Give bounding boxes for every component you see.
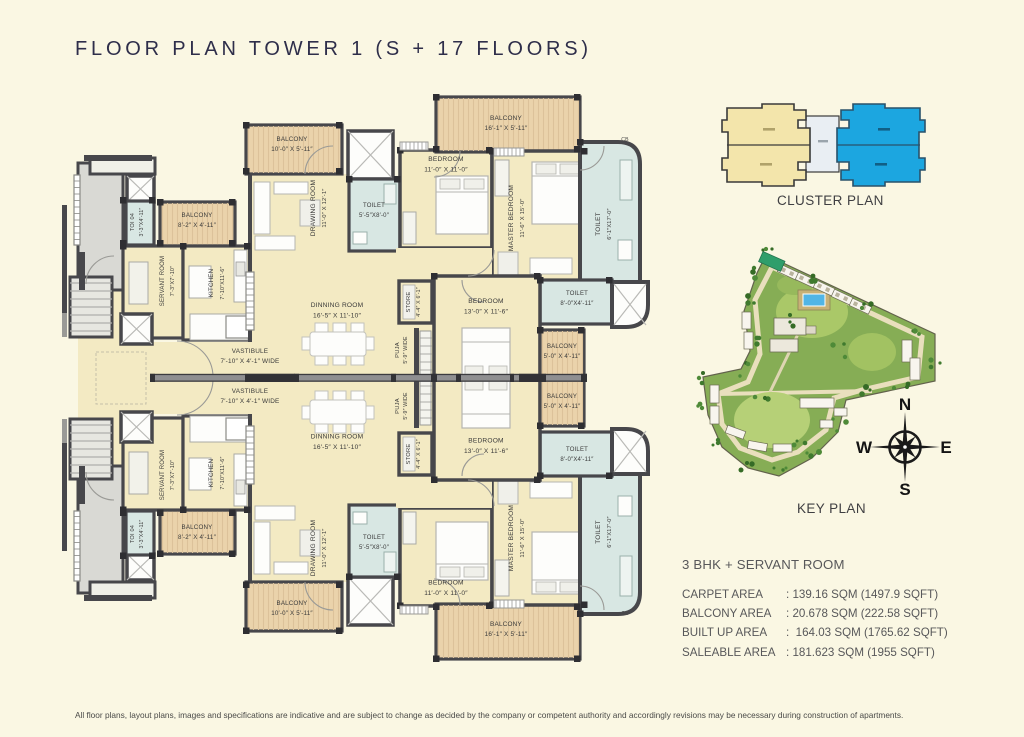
svg-text:BALCONY: BALCONY [182, 212, 213, 219]
svg-text:13′-0″ X 11′-6″: 13′-0″ X 11′-6″ [464, 448, 509, 455]
svg-text:DRAWING ROOM: DRAWING ROOM [310, 520, 317, 576]
svg-text:BEDROOM: BEDROOM [428, 580, 463, 587]
svg-text:TOI 04: TOI 04 [130, 213, 136, 231]
svg-text:E: E [940, 438, 951, 457]
svg-text:6′-1″X17′-0″: 6′-1″X17′-0″ [607, 208, 613, 239]
svg-text:BEDROOM: BEDROOM [428, 156, 463, 163]
svg-text:TOILET: TOILET [566, 291, 588, 297]
svg-text:7′-10″X11′-6″: 7′-10″X11′-6″ [220, 266, 226, 299]
svg-text:DRAWING ROOM: DRAWING ROOM [310, 180, 317, 236]
svg-text:BALCONY: BALCONY [277, 136, 308, 143]
svg-text:16′-1″ X 5′-11″: 16′-1″ X 5′-11″ [485, 125, 528, 132]
svg-text:7′-10″X11′-6″: 7′-10″X11′-6″ [220, 456, 226, 489]
svg-text:TOILET: TOILET [566, 447, 588, 453]
svg-text:W: W [856, 438, 873, 457]
svg-text:11′-0″ X 12′-1″: 11′-0″ X 12′-1″ [322, 528, 328, 567]
svg-text:BALCONY: BALCONY [547, 394, 577, 400]
svg-text:5′-5″X8′-0″: 5′-5″X8′-0″ [359, 545, 390, 551]
svg-text:STORE: STORE [406, 292, 412, 313]
svg-text:4′-4″ X 6′-1″: 4′-4″ X 6′-1″ [416, 439, 422, 469]
svg-text:BALCONY: BALCONY [182, 524, 213, 531]
svg-text:6′-1″X17′-0″: 6′-1″X17′-0″ [607, 516, 613, 547]
svg-text:KITCHEN: KITCHEN [208, 269, 215, 298]
svg-text:VASTIBULE: VASTIBULE [232, 388, 269, 395]
svg-text:TOI 04: TOI 04 [130, 525, 136, 543]
svg-text:TOILET: TOILET [595, 520, 602, 543]
svg-text:8′-0″X4′-11″: 8′-0″X4′-11″ [560, 301, 594, 307]
svg-text:CB: CB [621, 611, 629, 617]
svg-text:8′-0″X4′-11″: 8′-0″X4′-11″ [560, 457, 594, 463]
svg-text:STORE: STORE [406, 444, 412, 465]
svg-text:10′-0″ X 5′-11″: 10′-0″ X 5′-11″ [271, 610, 313, 617]
svg-text:11′-0″ X 11′-0″: 11′-0″ X 11′-0″ [424, 166, 468, 173]
svg-text:11′-0″ X 12′-1″: 11′-0″ X 12′-1″ [322, 188, 328, 227]
svg-text:KITCHEN: KITCHEN [208, 459, 215, 488]
svg-text:BALCONY: BALCONY [547, 344, 577, 350]
svg-text:4′-4″ X 6′-1″: 4′-4″ X 6′-1″ [416, 287, 422, 317]
svg-text:7′-3″X7′-10″: 7′-3″X7′-10″ [170, 266, 176, 296]
svg-text:TOILET: TOILET [363, 535, 385, 541]
svg-text:DINNING ROOM: DINNING ROOM [311, 434, 364, 441]
svg-text:13′-0″ X 11′-6″: 13′-0″ X 11′-6″ [464, 308, 509, 315]
svg-text:BEDROOM: BEDROOM [468, 298, 503, 305]
svg-text:BALCONY: BALCONY [277, 600, 308, 607]
svg-text:TOILET: TOILET [363, 203, 385, 209]
svg-text:CB: CB [621, 137, 629, 143]
svg-text:5′-9″ WIDE: 5′-9″ WIDE [403, 336, 409, 364]
svg-text:8′-2″ X 4′-11″: 8′-2″ X 4′-11″ [178, 222, 217, 229]
svg-text:BALCONY: BALCONY [490, 621, 522, 628]
svg-text:SERVANT ROOM: SERVANT ROOM [160, 256, 166, 306]
svg-text:BALCONY: BALCONY [490, 115, 522, 122]
svg-text:MASTER BEDROOM: MASTER BEDROOM [508, 505, 515, 571]
svg-text:5′-5″X8′-0″: 5′-5″X8′-0″ [359, 213, 390, 219]
svg-text:SERVANT ROOM: SERVANT ROOM [160, 450, 166, 500]
svg-text:5′-0″ X 4′-11″: 5′-0″ X 4′-11″ [544, 404, 582, 410]
svg-text:11′-6″ X 15′-0″: 11′-6″ X 15′-0″ [520, 518, 526, 557]
svg-text:7′-10″ X 4′-1″ WIDE: 7′-10″ X 4′-1″ WIDE [220, 398, 279, 405]
svg-text:S: S [899, 480, 910, 499]
svg-text:10′-0″ X 5′-11″: 10′-0″ X 5′-11″ [271, 146, 313, 153]
svg-text:8′-2″ X 4′-11″: 8′-2″ X 4′-11″ [178, 534, 217, 541]
svg-text:VASTIBULE: VASTIBULE [232, 348, 269, 355]
svg-text:MASTER BEDROOM: MASTER BEDROOM [508, 185, 515, 251]
svg-text:5′-0″ X 4′-11″: 5′-0″ X 4′-11″ [544, 354, 582, 360]
svg-text:BEDROOM: BEDROOM [468, 438, 503, 445]
svg-text:11′-0″ X 11′-0″: 11′-0″ X 11′-0″ [424, 590, 468, 597]
svg-text:3′-3″X4′-11″: 3′-3″X4′-11″ [139, 208, 145, 237]
svg-text:3′-3″X4′-11″: 3′-3″X4′-11″ [139, 520, 145, 549]
svg-text:11′-6″ X 15′-0″: 11′-6″ X 15′-0″ [520, 198, 526, 237]
svg-text:PUJA: PUJA [395, 342, 401, 358]
svg-text:N: N [899, 395, 911, 414]
svg-text:DINNING ROOM: DINNING ROOM [311, 302, 364, 309]
svg-text:7′-3″X7′-10″: 7′-3″X7′-10″ [170, 460, 176, 490]
svg-text:16′-1″ X 5′-11″: 16′-1″ X 5′-11″ [485, 631, 528, 638]
svg-text:5′-9″ WIDE: 5′-9″ WIDE [403, 392, 409, 420]
svg-text:TOILET: TOILET [595, 212, 602, 235]
svg-text:16′-5″ X 11′-10″: 16′-5″ X 11′-10″ [313, 312, 361, 319]
svg-text:16′-5″ X 11′-10″: 16′-5″ X 11′-10″ [313, 444, 361, 451]
svg-text:PUJA: PUJA [395, 398, 401, 414]
svg-text:7′-10″ X 4′-1″ WIDE: 7′-10″ X 4′-1″ WIDE [220, 358, 279, 365]
